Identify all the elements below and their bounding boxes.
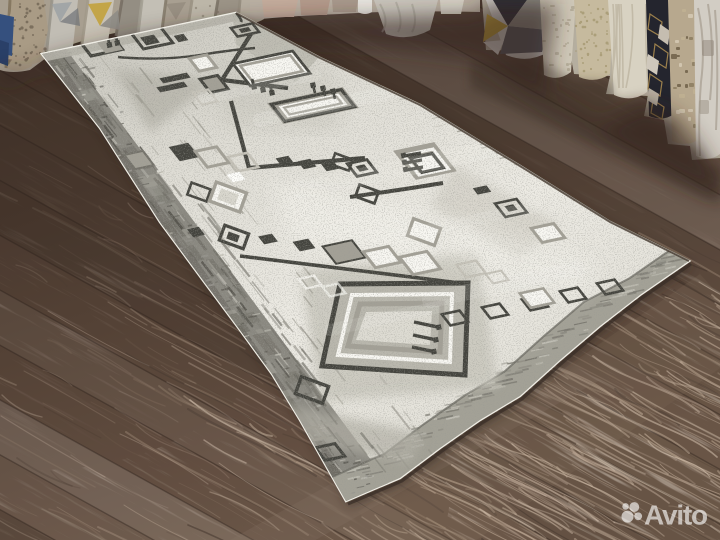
svg-text:Avito: Avito [644,500,708,531]
